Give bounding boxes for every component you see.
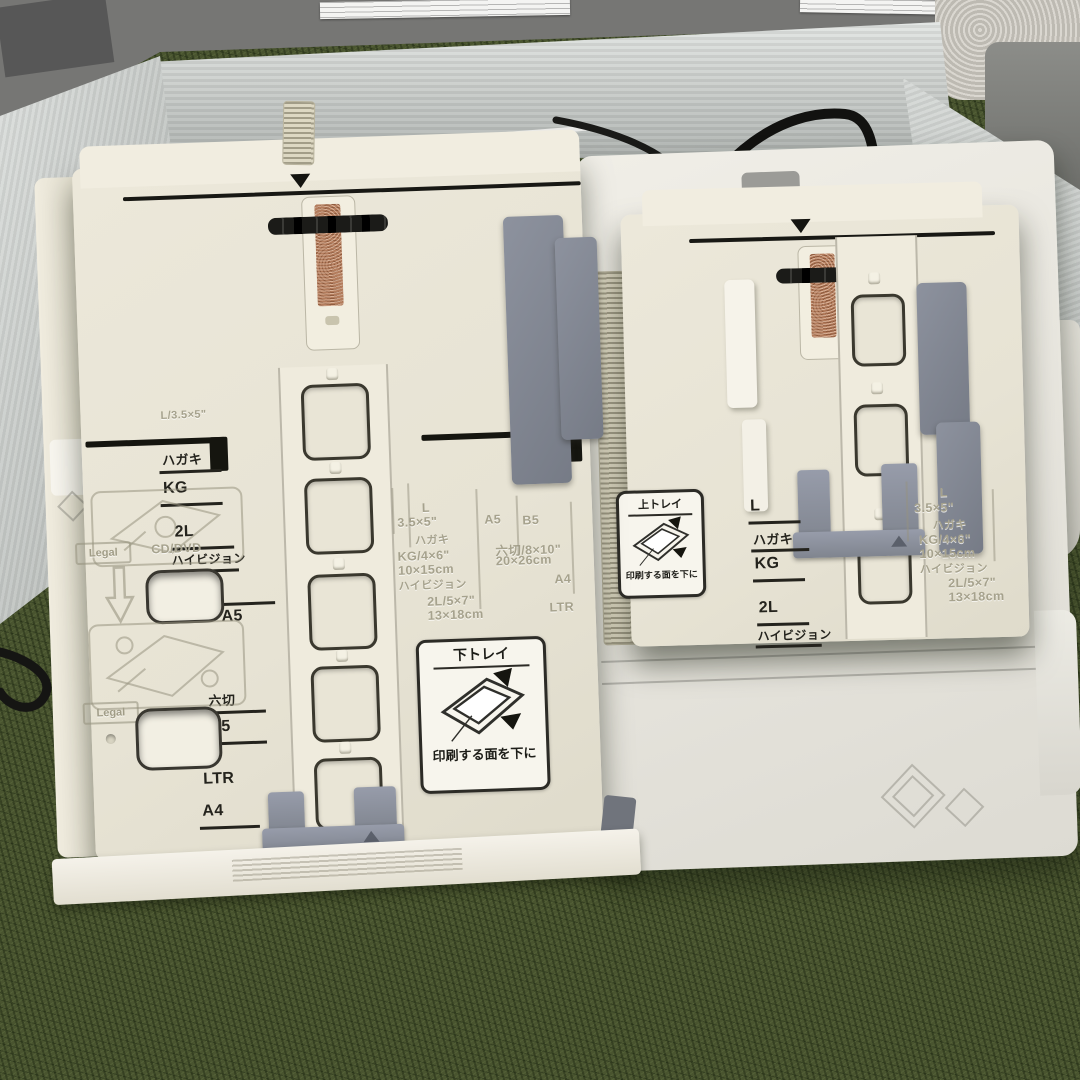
lower-paper-tray: L/3.5×5" ハガキ KG 2L ハイビジョン A5 六切 B5 LTR A… [33,128,637,896]
alignment-triangle-icon [791,219,811,234]
length-guide-rail [278,364,405,846]
finger-hole [145,568,225,625]
embossed-size: ハガキ [932,516,967,533]
side-guide-gray [555,237,604,440]
embossed-size: B5 [522,513,539,528]
embossed-size: ハイビジョン [920,559,989,577]
upper-tray-sticker: 上トレイ 印刷する面を下に [616,489,707,599]
embossed-size: 13×18cm [427,607,483,623]
size-label: LTR [203,770,235,789]
size-label: ハイビジョン [757,625,832,644]
embossed-size: KG/4×6" [919,532,972,547]
embossed-size: 13×18cm [948,589,1004,604]
embossed-size: A5 [484,512,501,527]
embossed-size: A4 [554,572,571,587]
sticker-title: 上トレイ [628,492,693,517]
paper-orientation-diagram [628,515,693,569]
size-label: ハガキ [753,528,794,548]
embossed-size: L [940,485,948,499]
embossed-diamond-pattern [945,788,985,828]
size-label-faint: L/3.5×5" [160,408,206,422]
black-cable-bottom [0,652,47,707]
sticker-caption: 印刷する面を下に [432,742,537,765]
embossed-size: 3.5×5" [397,514,437,529]
embossed-size: 10×15cm [919,546,975,561]
upper-paper-tray: 上トレイ 印刷する面を下に L ハガキ KG 2L ハイビジョン L 3.5×5… [586,180,1032,671]
legal-loading-diagram [88,619,247,710]
size-label: L [750,497,761,515]
paper-slot-mark [209,437,228,472]
load-arrow-icon [891,535,907,546]
size-label: A4 [202,802,224,821]
lower-tray-sticker: 下トレイ 印刷する面を下に [416,636,551,794]
embossed-size: ハイビジョン [398,575,467,593]
copper-friction-pad [809,253,836,338]
side-guide-gray [916,282,970,435]
sticker-caption: 印刷する面を下に [626,567,698,582]
embossed-size: L [422,501,431,515]
track-slot [325,316,339,325]
release-tab [282,101,315,166]
embossed-size: 20×26cm [496,552,552,568]
load-arrow-icon [363,831,379,843]
alignment-triangle-icon [290,174,310,189]
finger-hole [135,706,223,771]
down-arrow-embossed-icon [104,565,136,626]
cd-dvd-label: CD/DVD [151,541,202,557]
length-guide-rail [835,235,927,639]
printer-side-step [1034,609,1080,795]
embossed-diamond-pattern [881,764,946,829]
legal-badge: Legal [75,541,132,565]
legal-badge: Legal [83,701,140,725]
photo-scene: 上トレイ 印刷する面を下に L ハガキ KG 2L ハイビジョン L 3.5×5… [0,0,1080,1080]
sticker-title: 下トレイ [432,639,530,669]
embossed-size: ハガキ [415,531,450,548]
embossed-size: 3.5×5" [914,500,954,515]
embossed-size: LTR [549,600,574,615]
size-label: ハガキ [162,449,203,469]
size-label: KG [754,555,779,574]
paper-orientation-diagram [434,666,533,745]
embossed-size: 2L/5×7" [948,575,996,590]
size-label: 2L [759,599,779,618]
white-guide-tab [724,279,757,408]
